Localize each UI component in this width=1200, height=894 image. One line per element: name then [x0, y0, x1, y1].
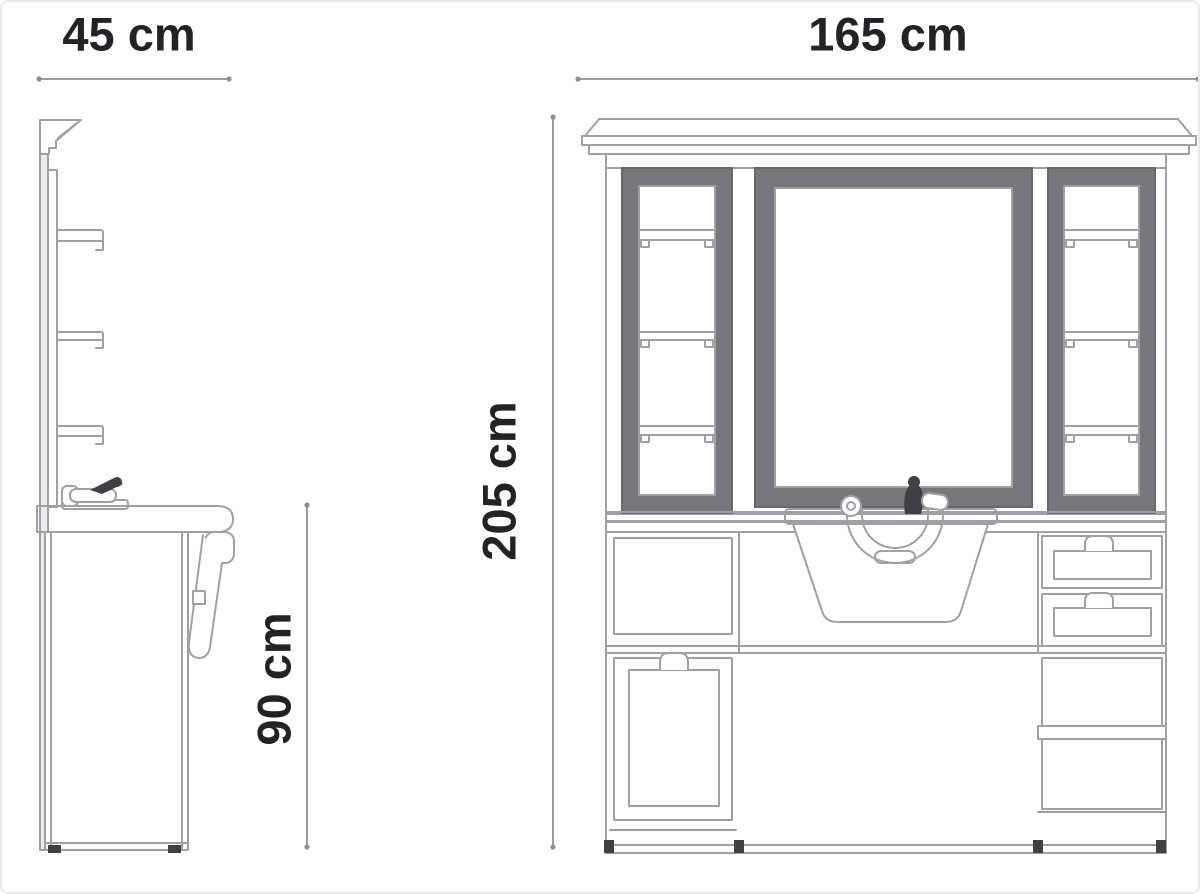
mirror	[755, 168, 1032, 507]
glass-cabinet-left	[622, 168, 732, 513]
hutch-side-panel	[48, 170, 57, 507]
side-shelf-top	[57, 230, 103, 250]
basin-bracket	[193, 591, 205, 604]
faucet-side	[62, 477, 128, 509]
cabinet-foot	[1033, 840, 1043, 853]
technical-drawing: 45 cm 165 cm 205 cm 90 cm	[0, 0, 1200, 894]
side-view	[37, 120, 234, 853]
shelf-bracket	[92, 340, 103, 348]
glass-cabinet-right	[1048, 168, 1155, 513]
crown-molding	[582, 119, 1196, 154]
cabinet-door	[610, 653, 736, 830]
drawer-handle	[1085, 593, 1113, 608]
cabinet-foot	[48, 845, 61, 853]
dimension-line-front-width	[575, 76, 1200, 81]
side-shelf-middle	[57, 332, 103, 348]
faucet-knob	[921, 492, 949, 510]
drawer-middle	[1042, 593, 1162, 646]
drawer-handle	[1085, 536, 1113, 551]
front-view	[582, 119, 1196, 853]
drawer-front-lower-1	[1042, 658, 1162, 726]
drawer-top	[1042, 536, 1162, 588]
wash-basin-profile	[189, 532, 234, 658]
cabinet-rail	[606, 646, 1166, 653]
base-cabinet-side	[45, 532, 188, 853]
drawer-rail	[1038, 726, 1166, 739]
door-handle	[660, 653, 688, 670]
basin-bowl	[793, 524, 988, 622]
cabinet-foot	[604, 840, 614, 853]
shelf-bracket	[92, 436, 103, 444]
drawing-canvas	[2, 2, 1200, 894]
dimension-line-side-width	[36, 76, 231, 81]
cabinet-foot	[168, 845, 181, 853]
drawer-front-lower-2	[1042, 739, 1162, 809]
side-panel-front	[614, 538, 732, 634]
side-shelf-bottom	[57, 426, 103, 444]
dimension-line-worktop-height	[304, 502, 309, 849]
cabinet-foot	[1156, 840, 1166, 853]
dimension-line-overall-height	[550, 114, 555, 849]
shelf-bracket	[92, 241, 103, 250]
cabinet-foot	[734, 840, 744, 853]
